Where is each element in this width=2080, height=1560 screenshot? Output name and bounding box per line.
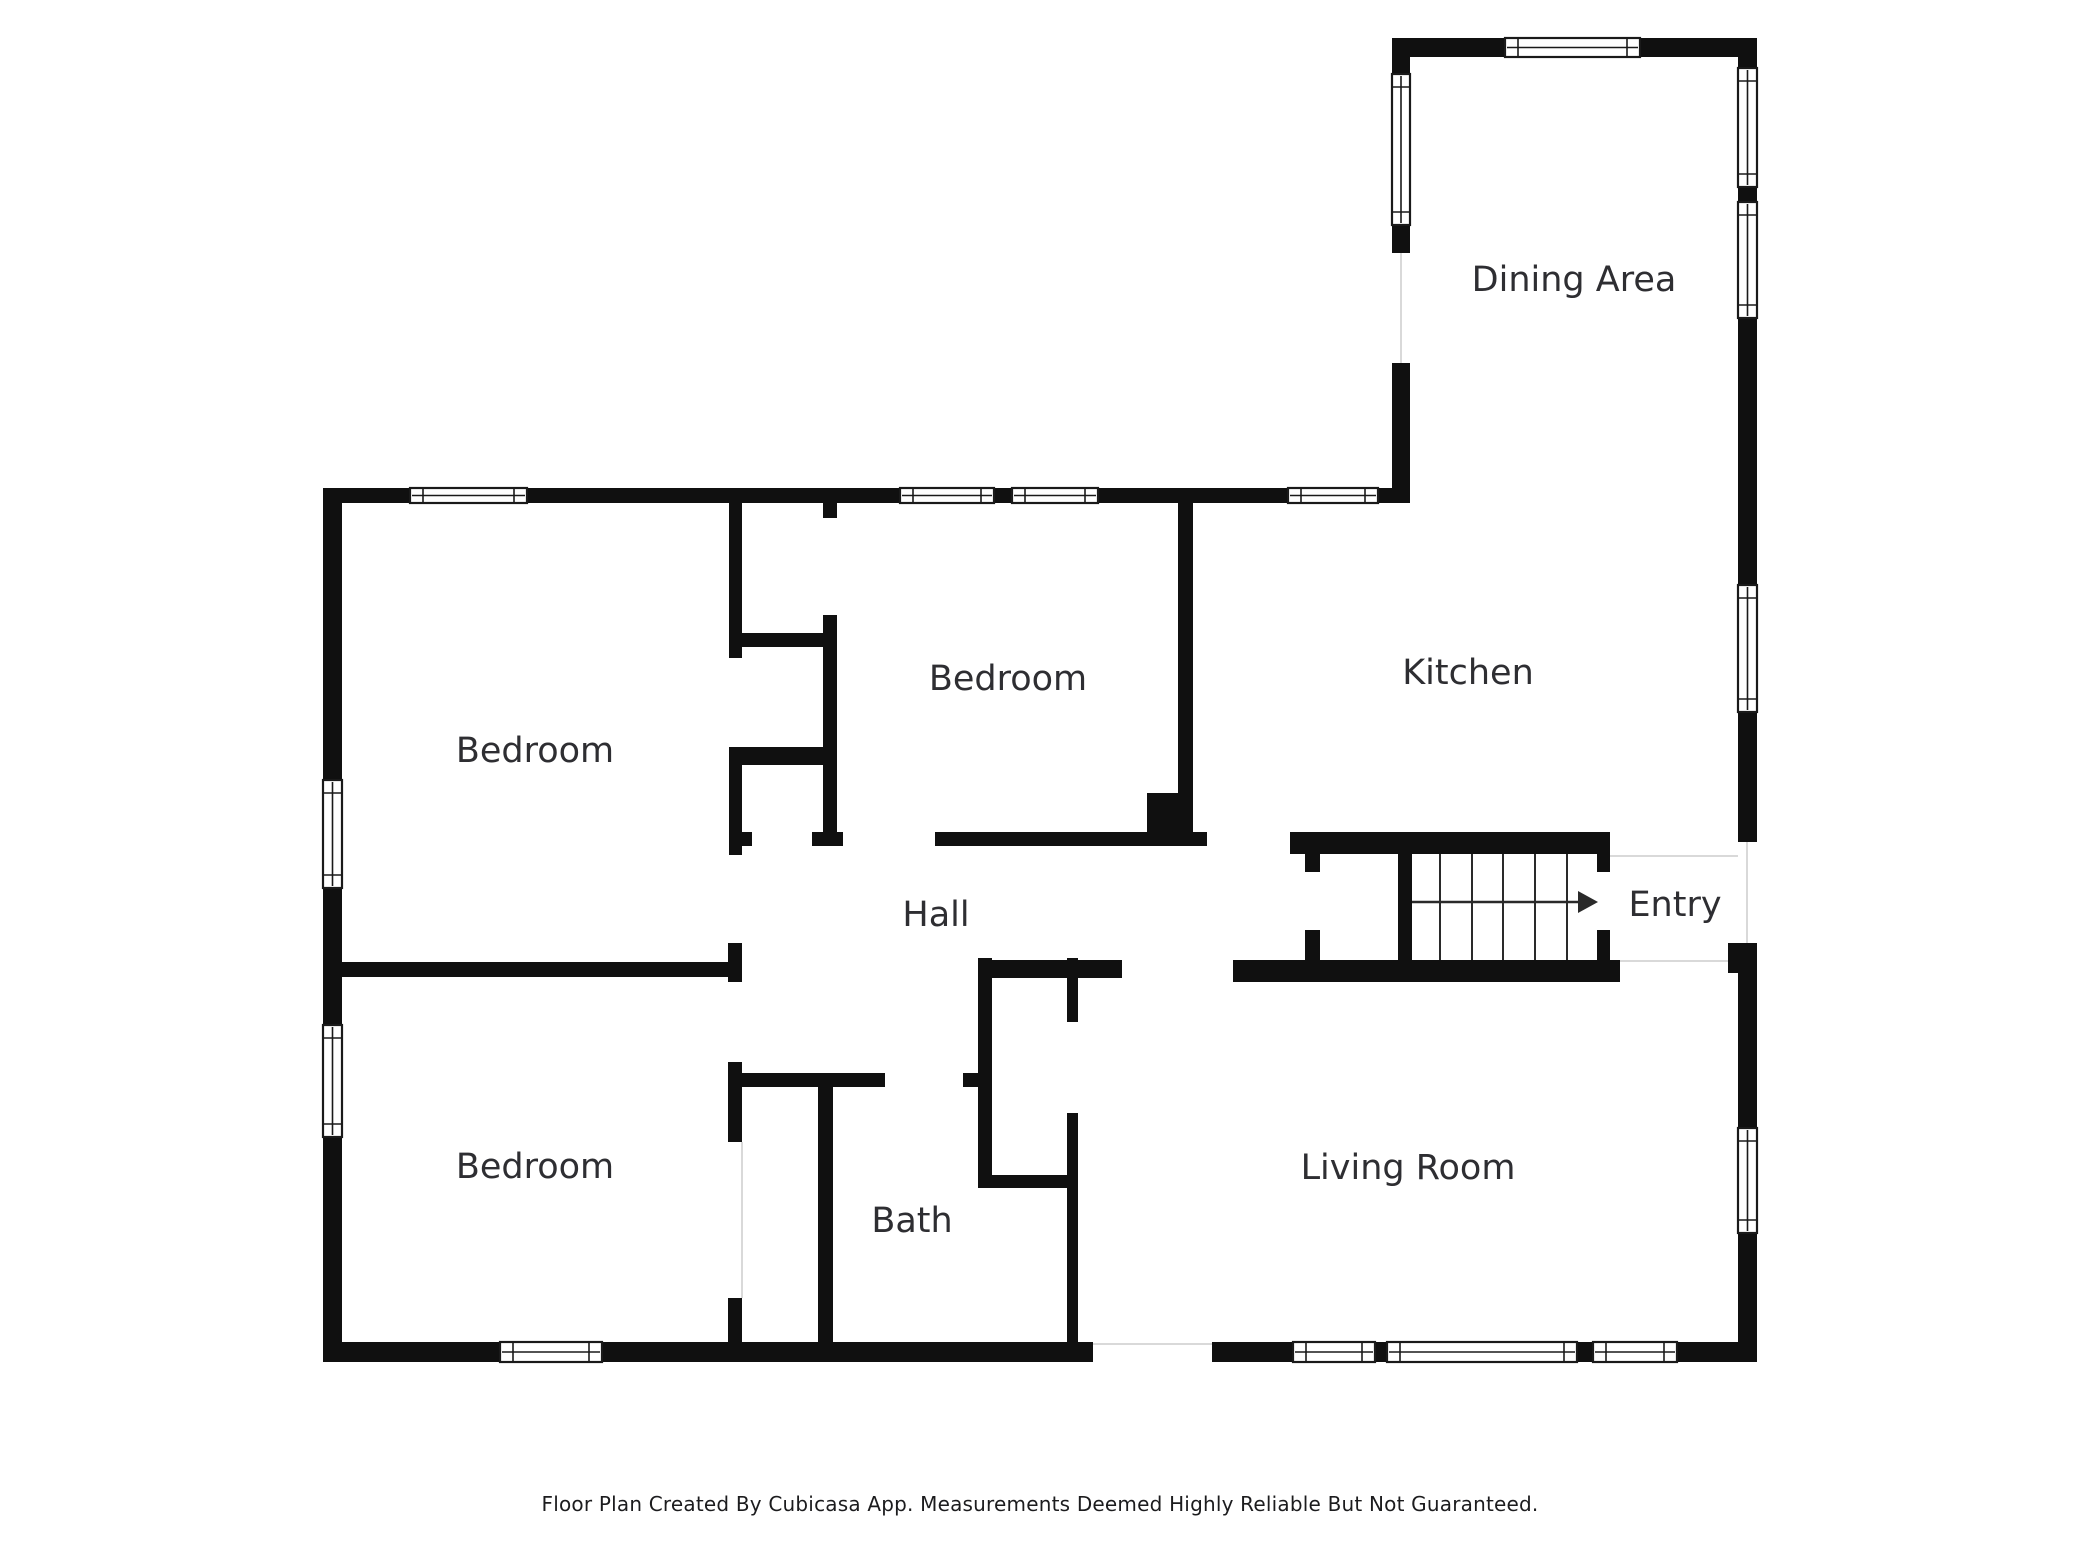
- wall-segment: [1392, 38, 1410, 74]
- wall-segment: [994, 488, 1012, 503]
- room-label-bedroom-middle: Bedroom: [929, 659, 1087, 699]
- wall-segment: [1738, 1233, 1757, 1362]
- room-label-bath: Bath: [871, 1201, 952, 1241]
- wall-segment: [729, 747, 837, 765]
- wall-segment: [1738, 712, 1757, 842]
- wall-segment: [1392, 225, 1410, 253]
- wall-segment: [527, 488, 900, 503]
- wall-segment: [1212, 1342, 1293, 1362]
- wall-segment: [812, 832, 843, 846]
- wall-segment: [323, 888, 342, 1025]
- wall-segment: [602, 1342, 1093, 1362]
- wall-segment: [728, 1298, 742, 1342]
- wall-segment: [1640, 38, 1757, 57]
- wall-segment: [978, 1175, 1067, 1188]
- wall-segment: [323, 1137, 342, 1362]
- plan-background: [0, 0, 2080, 1560]
- room-label-dining-area: Dining Area: [1472, 260, 1677, 300]
- room-label-bedroom-left-top: Bedroom: [456, 731, 614, 771]
- wall-segment: [1597, 854, 1610, 872]
- wall-segment: [1098, 488, 1288, 503]
- room-label-living-room: Living Room: [1301, 1148, 1516, 1188]
- footer-disclaimer: Floor Plan Created By Cubicasa App. Meas…: [0, 1492, 2080, 1516]
- chimney-block: [1147, 793, 1193, 840]
- wall-segment: [742, 1073, 885, 1087]
- wall-segment: [1392, 363, 1410, 503]
- wall-segment: [818, 1087, 833, 1342]
- floor-plan-svg: Dining AreaKitchenBedroomBedroomBedroomH…: [0, 0, 2080, 1560]
- wall-segment: [729, 633, 837, 647]
- room-label-bedroom-left-bottom: Bedroom: [456, 1147, 614, 1187]
- wall-segment: [1738, 318, 1757, 585]
- wall-segment: [728, 943, 742, 982]
- wall-segment: [1305, 930, 1320, 960]
- wall-segment: [1305, 854, 1320, 872]
- wall-segment: [342, 962, 742, 977]
- wall-segment: [1728, 943, 1738, 973]
- wall-segment: [1738, 187, 1757, 202]
- wall-segment: [1597, 930, 1610, 960]
- wall-segment: [978, 958, 992, 1188]
- wall-segment: [1398, 854, 1412, 960]
- room-label-entry: Entry: [1628, 885, 1721, 925]
- room-label-kitchen: Kitchen: [1402, 653, 1534, 693]
- wall-segment: [1577, 1342, 1593, 1362]
- wall-segment: [823, 615, 837, 835]
- wall-segment: [823, 503, 837, 518]
- wall-segment: [323, 488, 342, 780]
- room-label-hall: Hall: [902, 895, 969, 935]
- floor-plan: Dining AreaKitchenBedroomBedroomBedroomH…: [0, 0, 2080, 1560]
- wall-segment: [729, 832, 752, 846]
- wall-segment: [728, 1062, 742, 1142]
- wall-segment: [1178, 503, 1193, 793]
- wall-segment: [1290, 832, 1610, 854]
- wall-segment: [1067, 1113, 1078, 1342]
- wall-segment: [1233, 960, 1620, 982]
- wall-segment: [1375, 1342, 1387, 1362]
- wall-segment: [1738, 943, 1757, 1128]
- wall-segment: [980, 960, 1122, 978]
- wall-segment: [323, 1342, 500, 1362]
